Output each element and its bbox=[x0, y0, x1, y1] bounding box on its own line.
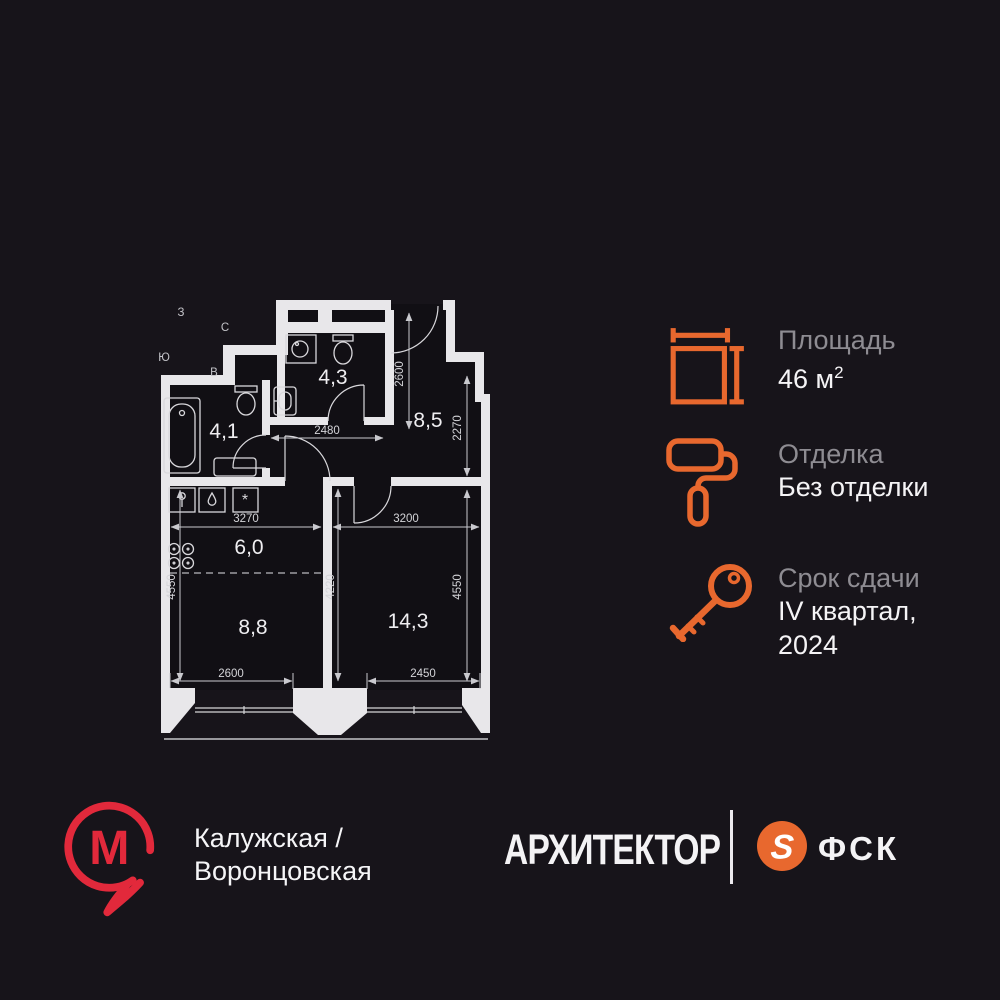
dim-bottom-right: 2450 bbox=[410, 668, 436, 680]
info-item-finishing: Отделка Без отделки bbox=[666, 438, 928, 533]
floor-plan: * 2600 2270 2480 3270 3200 4220 4550 455… bbox=[158, 290, 503, 752]
key-icon bbox=[666, 562, 750, 647]
developer-logo: АРХИТЕКТОР bbox=[504, 826, 720, 875]
deadline-label: Срок сдачи bbox=[778, 562, 920, 594]
area-value: 46 м2 bbox=[778, 356, 896, 396]
compass-north: С bbox=[221, 322, 229, 334]
finishing-label: Отделка bbox=[778, 438, 928, 470]
dim-bedroom: 3200 bbox=[393, 513, 419, 525]
fsk-logo-icon: S bbox=[757, 821, 807, 871]
finishing-value: Без отделки bbox=[778, 470, 928, 504]
room-label-bathroom-left: 4,1 bbox=[209, 420, 238, 443]
listing-card: * 2600 2270 2480 3270 3200 4220 4550 455… bbox=[0, 0, 1000, 1000]
room-label-bathroom-top: 4,3 bbox=[318, 366, 347, 389]
metro-stations: Калужская / Воронцовская bbox=[194, 822, 372, 888]
compass-east: В bbox=[210, 367, 218, 379]
room-label-hallway: 8,5 bbox=[413, 409, 442, 432]
dim-bottom-left: 2600 bbox=[218, 668, 244, 680]
room-label-living: 8,8 bbox=[238, 616, 267, 639]
fsk-logo-text: ФСК bbox=[818, 830, 899, 868]
metro-letter: М bbox=[89, 821, 129, 875]
room-label-bedroom: 14,3 bbox=[388, 610, 429, 633]
dim-kitchen: 3270 bbox=[233, 513, 259, 525]
fsk-symbol: S bbox=[769, 829, 795, 867]
compass: З С Ю В bbox=[158, 307, 229, 379]
station-line2: Воронцовская bbox=[194, 855, 372, 888]
compass-south: Ю bbox=[158, 352, 170, 364]
area-label: Площадь bbox=[778, 324, 896, 356]
area-icon bbox=[666, 324, 750, 413]
dim-entry: 2270 bbox=[452, 415, 464, 441]
deadline-value-line2: 2024 bbox=[778, 628, 920, 662]
station-line1: Калужская / bbox=[194, 822, 372, 855]
paint-roller-icon bbox=[666, 438, 750, 533]
room-label-kitchen: 6,0 bbox=[234, 536, 263, 559]
dim-right: 4550 bbox=[452, 574, 464, 600]
compass-west: З bbox=[178, 307, 185, 319]
dim-central: 4220 bbox=[325, 574, 337, 600]
logo-divider bbox=[730, 810, 733, 884]
dim-corridor: 2480 bbox=[314, 425, 340, 437]
dim-left: 4550 bbox=[166, 574, 178, 600]
dim-hall: 2600 bbox=[394, 361, 406, 387]
deadline-value-line1: IV квартал, bbox=[778, 594, 920, 628]
info-item-area: Площадь 46 м2 bbox=[666, 324, 896, 413]
metro-icon: М bbox=[58, 793, 176, 927]
info-item-deadline: Срок сдачи IV квартал, 2024 bbox=[666, 562, 920, 662]
fridge-icon: * bbox=[242, 492, 248, 509]
